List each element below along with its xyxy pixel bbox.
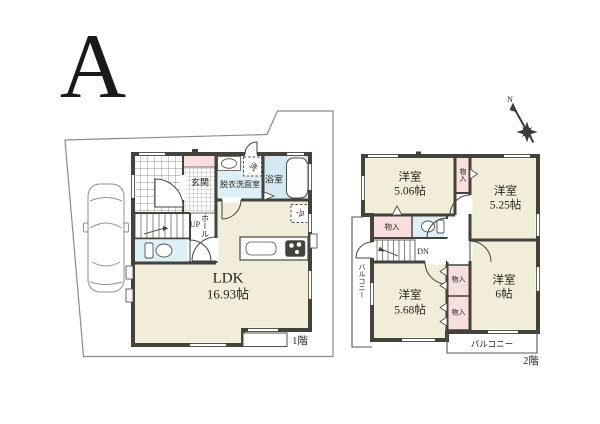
room-area-yoshitsu-2: 5.25帖 [490,200,522,212]
closet-label-right-a: 物入 [452,277,466,284]
room-label-washroom: 脱衣洗面室 [220,181,260,189]
closet-label-top: 物入 [459,168,466,182]
floorplan-image: A 玄関 脱衣洗面室 浴室 洗 冷 UP ホール LDK 16.93帖 1階 洋… [0,0,600,424]
room-label-yoshitsu-3: 洋室 [399,290,422,302]
floor2-room-fills [363,156,538,340]
floor1-label: 1階 [292,336,308,347]
room-label-ldk: LDK [213,272,244,287]
room-label-yoshitsu-2: 洋室 [494,186,517,198]
room-label-hall: ホール [201,214,209,238]
room-area-yoshitsu-3: 5.68帖 [394,305,426,317]
room-area-ldk: 16.93帖 [207,288,249,301]
balcony-label-left: バルコニー [358,264,365,299]
balcony-label-bottom: バルコニー [471,340,513,349]
closet-label-mid: 物入 [385,223,400,231]
room-label-yoshitsu-4: 洋室 [493,275,516,287]
closet-label-right-b: 物入 [452,310,466,317]
room-label-genkan: 玄関 [191,179,209,188]
room-label-bath: 浴室 [265,176,283,185]
room-label-yoshitsu-1: 洋室 [399,172,422,184]
stairs-down [372,240,415,262]
room-area-yoshitsu-4: 6帖 [495,289,512,301]
terrace-step [243,333,287,347]
room-area-yoshitsu-1: 5.06帖 [394,186,426,198]
floor2-label: 2階 [523,357,539,368]
compass-icon [510,103,538,143]
stairs-down-label: DN [417,248,429,256]
stairs-up-label: UP [190,221,200,229]
compass-north-label: N [507,96,513,104]
plan-variant-label: A [60,20,126,112]
